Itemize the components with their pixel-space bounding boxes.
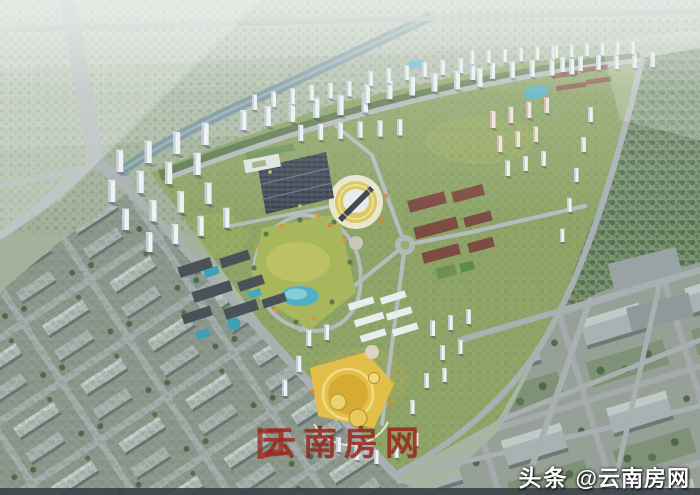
masterplan-art (0, 0, 700, 495)
bottom-dark-strip (0, 488, 700, 495)
aerial-masterplan-rendering: 云南房网 头条 @云南房网 (0, 0, 700, 495)
haze-overlay (0, 0, 700, 240)
